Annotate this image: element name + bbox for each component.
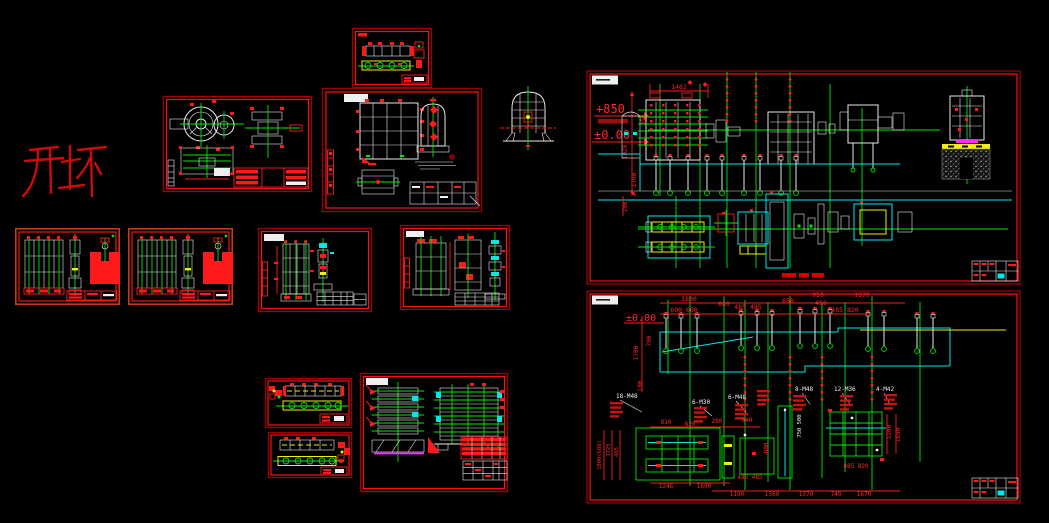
dim-1190[interactable]: 1190 [730,491,745,498]
roll-detail [414,42,424,68]
dim-485-820[interactable]: 485 820 [831,306,858,314]
pedestal-and-foundation [942,90,990,179]
dim-1020[interactable]: 1020 [622,144,629,159]
housing-title-block [410,182,480,206]
shaft-bar [280,437,334,450]
leader-annotations [610,390,897,423]
assembly-view-3 [485,232,505,300]
revision-strip [263,262,268,296]
drive-line-elevation [706,78,904,172]
dim-1670[interactable]: 1670 [857,491,872,498]
dim-740[interactable]: 740 [831,491,842,498]
revision-strip [168,160,174,186]
parts-list [317,292,366,305]
kaipi-label [23,146,106,196]
label-4-M42[interactable]: 4-M42 [876,386,894,393]
roll-roller-view [358,61,414,70]
dim-1670[interactable]: 1670 [854,291,870,299]
gearbox-title-block [214,168,308,187]
plan-dim-100[interactable]: 100 [622,196,629,216]
gear-front-view [170,100,244,151]
title-block [463,461,507,480]
left-dim-chain[interactable]: 1020 350 1700 [622,91,647,197]
dim-1800-680[interactable]: 1800(680) [597,440,603,470]
sheet-screwdown-2[interactable] [129,229,233,304]
dim-840[interactable]: 840 [742,417,753,424]
housing-section-lines [415,154,456,169]
title-block [321,467,347,475]
title-block [320,414,347,423]
left-detail [269,386,282,399]
dim-650[interactable]: 650 [782,297,794,305]
title-block [972,478,1018,498]
dim-1370[interactable]: 1370 [799,491,814,498]
dim-100[interactable]: 100 [637,380,644,391]
dim-1360[interactable]: 1360 [765,491,780,498]
dim-1600[interactable]: 1600 [697,483,712,490]
dim-465[interactable]: 465 [614,447,620,457]
dim-750-500[interactable]: 750 500 [797,414,803,437]
column-left-view [274,240,311,301]
layout-plan [638,191,1008,268]
sheet-column-assembly-2[interactable] [401,226,510,310]
dim-1725[interactable]: 1725 [606,443,612,456]
dim-800-rot[interactable]: 800 [763,442,770,453]
autocad-model-space[interactable]: +850 ±0.00 1020 350 1700 1462 [0,0,1049,523]
dim-1462[interactable]: 1462 [671,83,687,91]
dim-700[interactable]: 700 [646,335,653,346]
dim-450[interactable]: 450 [815,299,827,307]
stack-side-view [366,382,424,462]
top-dim-1462[interactable]: 1462 [650,80,708,98]
parts-table-red [461,437,507,459]
cad-canvas[interactable]: +850 ±0.00 1020 350 1700 1462 [0,0,1049,523]
dim-485-485[interactable]: 485 485 [734,303,761,311]
roller-bar [276,401,348,410]
dim-600-600[interactable]: 600 600 [670,306,697,314]
sheet-mill-line-layout[interactable]: +850 ±0.00 1020 350 1700 1462 [587,71,1020,284]
dim-485-820-plan[interactable]: 485 820 [843,463,869,470]
dim-1700[interactable]: 1700 [631,172,638,187]
shaft-bar [283,383,344,396]
bolt-callouts[interactable]: 18-M48 6-M30 6-M48 8-M48 12-M36 4-M42 [616,386,894,416]
dim-800[interactable]: 800 [718,300,730,308]
centerlines [648,72,967,268]
dim-810[interactable]: 810 [661,419,672,426]
label-18-M48[interactable]: 18-M48 [616,393,638,400]
dim-1800[interactable]: 1800 [681,295,697,303]
level-zero[interactable]: ±0.00 [624,313,664,324]
sheet-stand-stack[interactable] [361,374,508,492]
sheet-roll-unit[interactable] [353,29,432,88]
dim-100[interactable]: 100 [622,201,629,212]
title-block [972,261,1018,281]
revision-strip [405,258,410,288]
roll-shaft-view [362,42,414,56]
plan-caption [782,273,824,278]
level-850[interactable]: +850 [596,102,625,116]
sheet-housing[interactable] [323,89,482,212]
housing-front-grid [356,99,424,165]
sheet-roller-line-2[interactable] [269,433,352,478]
label-12-M36[interactable]: 12-M36 [834,386,856,393]
column-right-view [310,238,334,302]
label-8-M48[interactable]: 8-M48 [795,386,813,393]
label-6-M48[interactable]: 6-M48 [728,394,746,401]
roll-title-block [402,75,427,83]
dim-1246[interactable]: 1246 [659,483,674,490]
sheet-foundation-plan[interactable]: 1800 600 600 800 485 485 650 950 450 167… [587,291,1020,503]
dim-485-485-plan[interactable]: 485 485 [737,474,763,481]
assembly-view-2 [450,234,481,298]
dim-820[interactable]: 820 [685,421,696,428]
right-detail [338,442,350,460]
sheet-screwdown-1[interactable] [16,229,120,304]
sheet-gearbox[interactable] [164,97,312,192]
rebar-columns [744,356,874,401]
gear-side-view [245,105,302,158]
sheet-roller-line-1[interactable] [266,379,352,428]
sheet-column-assembly-1[interactable] [259,229,372,312]
dim-280[interactable]: 280 [712,418,723,425]
roller-bar [273,457,344,466]
stand-sketch[interactable] [500,86,556,150]
assembly-view-1 [413,236,449,296]
revision-strip [328,150,334,194]
dim-1700[interactable]: 1700 [633,345,640,360]
left-dim-chain[interactable]: 700 1700 100 [633,316,653,392]
housing-bottom-view [356,170,400,194]
foundation-profile [660,307,1006,372]
label-6-M30[interactable]: 6-M30 [692,399,710,406]
mill-stand-elevation [622,93,708,160]
level-000[interactable]: ±0.00 [626,313,656,324]
dim-950[interactable]: 950 [812,291,824,299]
